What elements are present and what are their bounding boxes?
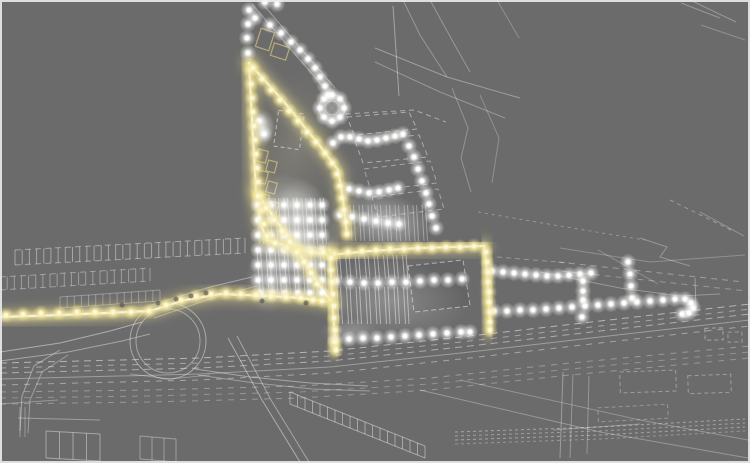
streetlight-warm-core	[299, 296, 303, 300]
streetlight-warm-core	[252, 124, 256, 128]
streetlight-white-core	[245, 36, 249, 40]
streetlight-warm-core	[256, 194, 260, 198]
streetlight-warm-core	[320, 299, 324, 303]
streetlight-warm-core	[487, 290, 491, 294]
streetlight-white-core	[628, 272, 632, 276]
streetlight-warm-core	[309, 250, 313, 254]
streetlight-white-core	[580, 315, 584, 319]
streetlight-white-core	[434, 226, 438, 230]
streetlight-white-core	[256, 278, 260, 282]
streetlight-white-core	[279, 31, 283, 35]
streetlight-white-core	[282, 263, 286, 267]
streetlight-warm-core	[305, 130, 309, 134]
streetlight-white-core	[362, 281, 366, 285]
streetlight-white-core	[320, 203, 324, 207]
streetlight-white-core	[308, 218, 312, 222]
streetlight-warm-core	[331, 292, 335, 296]
streetlight-white-core	[418, 279, 422, 283]
streetlight-white-core	[269, 263, 273, 267]
streetlight-warm-core	[256, 180, 260, 184]
streetlight-warm-core	[164, 303, 168, 307]
streetlight-white-core	[420, 179, 424, 183]
streetlight-white-core	[375, 336, 379, 340]
streetlight-warm-core	[302, 260, 306, 264]
streetlight-white-core	[253, 16, 257, 20]
streetlight-warm-core	[346, 250, 350, 254]
streetlight-white-core	[403, 334, 407, 338]
streetlight-warm-core	[388, 247, 392, 251]
streetlight-white-core	[338, 97, 342, 101]
streetlight-warm-core	[265, 234, 269, 238]
streetlight-warm-core	[416, 246, 420, 250]
streetlight-warm-core	[344, 220, 348, 224]
tree-dot	[204, 291, 209, 296]
streetlight-white-core	[432, 278, 436, 282]
streetlight-white-core	[512, 271, 516, 275]
streetlight-white-core	[289, 40, 293, 44]
streetlight-white-core	[417, 333, 421, 337]
streetlight-white-core	[397, 222, 401, 226]
streetlight-white-core	[306, 57, 310, 61]
streetlight-warm-core	[239, 292, 243, 296]
streetlight-warm-core	[39, 311, 43, 315]
streetlight-white-core	[361, 336, 365, 340]
streetlight-warm-core	[260, 77, 264, 81]
streetlight-white-core	[256, 248, 260, 252]
streetlight-white-core	[523, 272, 527, 276]
streetlight-warm-core	[251, 66, 255, 70]
streetlight-white-core	[446, 278, 450, 282]
streetlight-white-core	[320, 233, 324, 237]
lighting-plan	[0, 0, 750, 463]
streetlight-white-core	[468, 330, 472, 334]
tree-dot	[156, 301, 161, 306]
streetlight-warm-core	[179, 298, 183, 302]
tree-dot	[120, 303, 125, 308]
streetlight-warm-core	[360, 249, 364, 253]
streetlight-white-core	[680, 312, 684, 316]
streetlight-warm-core	[486, 280, 490, 284]
streetlight-warm-core	[340, 196, 344, 200]
streetlight-warm-core	[253, 138, 257, 142]
streetlight-warm-core	[254, 293, 258, 297]
streetlight-warm-core	[330, 280, 334, 284]
streetlight-warm-core	[273, 241, 277, 245]
streetlight-white-core	[295, 278, 299, 282]
tree-dot	[174, 297, 179, 302]
streetlight-white-core	[357, 189, 361, 193]
streetlight-white-core	[581, 298, 585, 302]
streetlight-white-core	[367, 191, 371, 195]
streetlight-white-core	[424, 191, 428, 195]
streetlight-warm-core	[147, 309, 151, 313]
streetlight-warm-core	[262, 222, 266, 226]
streetlight-warm-core	[296, 119, 300, 123]
streetlight-white-core	[282, 278, 286, 282]
streetlight-warm-core	[287, 109, 291, 113]
streetlight-warm-core	[4, 313, 8, 317]
streetlight-white-core	[501, 270, 505, 274]
streetlight-white-core	[348, 280, 352, 284]
streetlight-white-core	[295, 203, 299, 207]
streetlight-warm-core	[269, 294, 273, 298]
streetlight-white-core	[362, 217, 366, 221]
streetlight-warm-core	[321, 250, 325, 254]
streetlight-warm-core	[194, 294, 198, 298]
streetlight-warm-core	[315, 282, 319, 286]
streetlight-warm-core	[254, 152, 258, 156]
streetlight-white-core	[661, 298, 665, 302]
streetlight-white-core	[404, 280, 408, 284]
streetlight-white-core	[534, 273, 538, 277]
streetlight-warm-core	[209, 292, 213, 296]
streetlight-white-core	[460, 277, 464, 281]
streetlight-white-core	[308, 233, 312, 237]
streetlight-white-core	[518, 308, 522, 312]
streetlight-warm-core	[255, 166, 259, 170]
streetlight-white-core	[629, 284, 633, 288]
streetlight-warm-core	[402, 247, 406, 251]
streetlight-white-core	[275, 2, 279, 6]
streetlight-warm-core	[309, 271, 313, 275]
streetlight-white-core	[374, 219, 378, 223]
streetlight-warm-core	[329, 256, 333, 260]
streetlight-warm-core	[250, 96, 254, 100]
streetlight-white-core	[308, 203, 312, 207]
streetlight-warm-core	[484, 250, 488, 254]
streetlight-white-core	[557, 306, 561, 310]
streetlight-white-core	[673, 297, 677, 301]
streetlight-white-core	[269, 278, 273, 282]
streetlight-warm-core	[288, 240, 292, 244]
streetlight-warm-core	[430, 246, 434, 250]
streetlight-white-core	[246, 51, 250, 55]
streetlight-white-core	[282, 203, 286, 207]
streetlight-white-core	[544, 307, 548, 311]
streetlight-warm-core	[314, 140, 318, 144]
streetlight-warm-core	[295, 250, 299, 254]
streetlight-warm-core	[335, 172, 339, 176]
streetlight-white-core	[626, 260, 630, 264]
streetlight-white-core	[412, 155, 416, 159]
streetlight-warm-core	[278, 98, 282, 102]
streetlight-white-core	[505, 309, 509, 313]
streetlight-warm-core	[330, 161, 334, 165]
streetlight-white-core	[427, 202, 431, 206]
tree-dot	[304, 301, 309, 306]
streetlight-white-core	[431, 332, 435, 336]
streetlight-warm-core	[444, 245, 448, 249]
streetlight-warm-core	[75, 310, 79, 314]
streetlight-white-core	[295, 218, 299, 222]
streetlight-white-core	[589, 271, 593, 275]
tree-dot	[189, 294, 194, 299]
streetlight-warm-core	[251, 110, 255, 114]
streetlight-warm-core	[329, 268, 333, 272]
streetlight-warm-core	[332, 304, 336, 308]
streetlight-warm-core	[472, 244, 476, 248]
streetlight-white-core	[430, 214, 434, 218]
streetlight-warm-core	[485, 260, 489, 264]
streetlight-white-core	[581, 279, 585, 283]
streetlight-white-core	[401, 132, 405, 136]
streetlight-warm-core	[93, 310, 97, 314]
streetlight-white-core	[567, 273, 571, 277]
streetlight-warm-core	[333, 328, 337, 332]
streetlight-warm-core	[338, 184, 342, 188]
streetlight-white-core	[596, 303, 600, 307]
streetlight-warm-core	[57, 311, 61, 315]
streetlight-white-core	[298, 48, 302, 52]
streetlight-warm-core	[323, 151, 327, 155]
streetlight-warm-core	[486, 270, 490, 274]
streetlight-white-core	[347, 337, 351, 341]
streetlight-white-core	[256, 263, 260, 267]
streetlight-white-core	[630, 296, 634, 300]
streetlight-warm-core	[488, 310, 492, 314]
streetlight-white-core	[282, 218, 286, 222]
streetlight-warm-core	[345, 232, 349, 236]
streetlight-warm-core	[332, 316, 336, 320]
streetlight-white-core	[556, 274, 560, 278]
streetlight-white-core	[390, 280, 394, 284]
streetlight-white-core	[386, 221, 390, 225]
streetlight-white-core	[531, 308, 535, 312]
streetlight-white-core	[377, 190, 381, 194]
streetlight-white-core	[262, 132, 266, 136]
streetlight-white-core	[376, 281, 380, 285]
streetlight-white-core	[609, 302, 613, 306]
streetlight-white-core	[648, 299, 652, 303]
streetlight-white-core	[389, 335, 393, 339]
streetlight-warm-core	[224, 291, 228, 295]
streetlight-white-core	[320, 218, 324, 222]
streetlight-warm-core	[284, 295, 288, 299]
streetlight-warm-core	[458, 245, 462, 249]
lighting-masterplan-image	[0, 0, 750, 463]
streetlight-warm-core	[487, 300, 491, 304]
streetlight-warm-core	[272, 218, 276, 222]
tree-dot	[260, 299, 265, 304]
streetlight-white-core	[570, 305, 574, 309]
streetlight-warm-core	[264, 206, 268, 210]
streetlight-warm-core	[280, 229, 284, 233]
streetlight-warm-core	[374, 248, 378, 252]
streetlight-white-core	[445, 331, 449, 335]
streetlight-white-core	[396, 186, 400, 190]
streetlight-warm-core	[129, 310, 133, 314]
streetlight-white-core	[407, 144, 411, 148]
streetlight-warm-core	[334, 348, 338, 352]
streetlight-white-core	[320, 263, 324, 267]
streetlight-warm-core	[269, 88, 273, 92]
streetlight-white-core	[268, 23, 272, 27]
streetlight-white-core	[545, 274, 549, 278]
streetlight-warm-core	[488, 328, 492, 332]
streetlight-white-core	[416, 167, 420, 171]
streetlight-warm-core	[111, 310, 115, 314]
streetlight-warm-core	[342, 208, 346, 212]
streetlight-warm-core	[249, 82, 253, 86]
streetlight-warm-core	[21, 312, 25, 316]
